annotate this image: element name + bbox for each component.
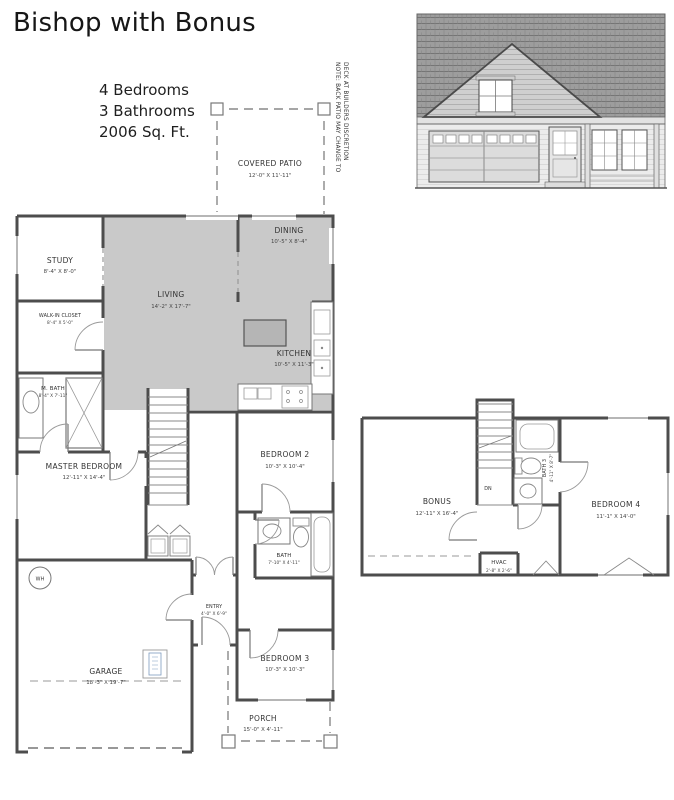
dim-porch: 15'-0" X 4'-11" xyxy=(243,727,283,733)
shaded-living-area xyxy=(104,217,333,410)
windows-second-floor xyxy=(598,414,672,579)
dim-walk-in-closet: 8'-4" X 5'-0" xyxy=(47,320,73,326)
first-floor-plan: COVERED PATIO 12'-0" X 11'-11" DINING 10… xyxy=(13,103,337,752)
bath3-vanity xyxy=(514,478,542,504)
house-elevation xyxy=(415,14,667,188)
dim-covered-patio: 12'-0" X 11'-11" xyxy=(249,173,292,179)
gable-window-header xyxy=(476,76,515,80)
stairs-second-floor xyxy=(477,404,513,505)
bath3-tub xyxy=(516,420,558,452)
label-water-heater: WH xyxy=(36,577,45,583)
dim-hvac: 2'-8" X 2'-6" xyxy=(486,568,512,574)
label-m-bath: M. BATH xyxy=(41,386,65,392)
dim-entry: 4'-0" X 6'-9" xyxy=(201,611,227,617)
second-floor-plan: BONUS 12'-11" X 16'-4" BEDROOM 4 11'-1" … xyxy=(362,400,672,579)
floor-plan-drawing: NOTE: BACK PATIO MAY CHANGE TO DECK AT B… xyxy=(0,0,674,800)
label-dining: DINING xyxy=(274,226,303,235)
garage-details xyxy=(28,567,182,748)
toilet-bowl xyxy=(294,527,309,547)
label-living: LIVING xyxy=(158,290,185,299)
bath3-toilet-bowl xyxy=(521,458,541,474)
note-line-1: NOTE: BACK PATIO MAY CHANGE TO xyxy=(334,62,340,173)
label-bath: BATH xyxy=(276,553,291,559)
stair-shaft-bg xyxy=(149,389,187,505)
dim-bedroom-2: 10'-3" X 10'-4" xyxy=(265,464,305,470)
label-kitchen: KITCHEN xyxy=(277,349,312,358)
dim-kitchen: 10'-5" X 11'-3" xyxy=(274,362,314,368)
dim-bedroom-4: 11'-1" X 14'-0" xyxy=(596,514,636,520)
dim-master-bedroom: 12'-11" X 14'-4" xyxy=(63,475,106,481)
dim-bath: 7'-10" X 4'-11" xyxy=(268,560,300,566)
label-bedroom-3: BEDROOM 3 xyxy=(260,654,309,663)
toilet-tank xyxy=(293,518,309,526)
label-porch: PORCH xyxy=(249,714,277,723)
attic-access xyxy=(143,650,167,678)
door-knob xyxy=(574,157,576,159)
builder-note: NOTE: BACK PATIO MAY CHANGE TO DECK AT B… xyxy=(334,62,348,173)
label-covered-patio: COVERED PATIO xyxy=(238,159,302,168)
dim-m-bath: 8'-4" X 7'-11" xyxy=(39,393,68,399)
dim-dining: 10'-5" X 8'-4" xyxy=(271,239,307,245)
label-entry: ENTRY xyxy=(206,604,222,610)
label-master-bedroom: MASTER BEDROOM xyxy=(46,462,123,471)
label-walk-in-closet: WALK-IN CLOSET xyxy=(39,313,81,319)
label-bonus: BONUS xyxy=(423,497,451,506)
label-bath-3: BATH 3 xyxy=(542,459,548,477)
dim-bedroom-3: 10'-3" X 10'-3" xyxy=(265,667,305,673)
kitchen-island xyxy=(244,320,286,346)
mbath-vanity xyxy=(19,378,43,438)
label-bedroom-2: BEDROOM 2 xyxy=(260,450,309,459)
hall-bath-fixtures xyxy=(258,513,333,576)
gable-window-sill xyxy=(476,112,515,116)
porch-post-left xyxy=(585,124,590,188)
front-step xyxy=(545,182,585,188)
floor-plan-page: Bishop with Bonus 4 Bedrooms 3 Bathrooms… xyxy=(0,0,674,800)
label-garage: GARAGE xyxy=(89,667,122,676)
dim-living: 14'-2" X 17'-7" xyxy=(151,304,191,310)
label-study: STUDY xyxy=(47,256,73,265)
dim-bonus: 12'-11" X 16'-4" xyxy=(416,511,459,517)
label-bedroom-4: BEDROOM 4 xyxy=(591,500,640,509)
label-hvac: HVAC xyxy=(491,560,507,566)
dim-study: 8'-4" X 8'-0" xyxy=(44,269,77,275)
note-line-2: DECK AT BUILDERS DISCRETION xyxy=(342,62,348,161)
bifold-doors xyxy=(148,525,190,534)
laundry-closet xyxy=(148,525,190,556)
dim-garage: 18'-3" X 19'-7" xyxy=(86,680,126,686)
elevation-fascia xyxy=(417,117,665,124)
porch-post-right xyxy=(654,124,659,188)
dim-bath-3: 4'-11" X 8'-7" xyxy=(549,454,555,483)
label-stairs-dn: DN xyxy=(484,486,492,492)
